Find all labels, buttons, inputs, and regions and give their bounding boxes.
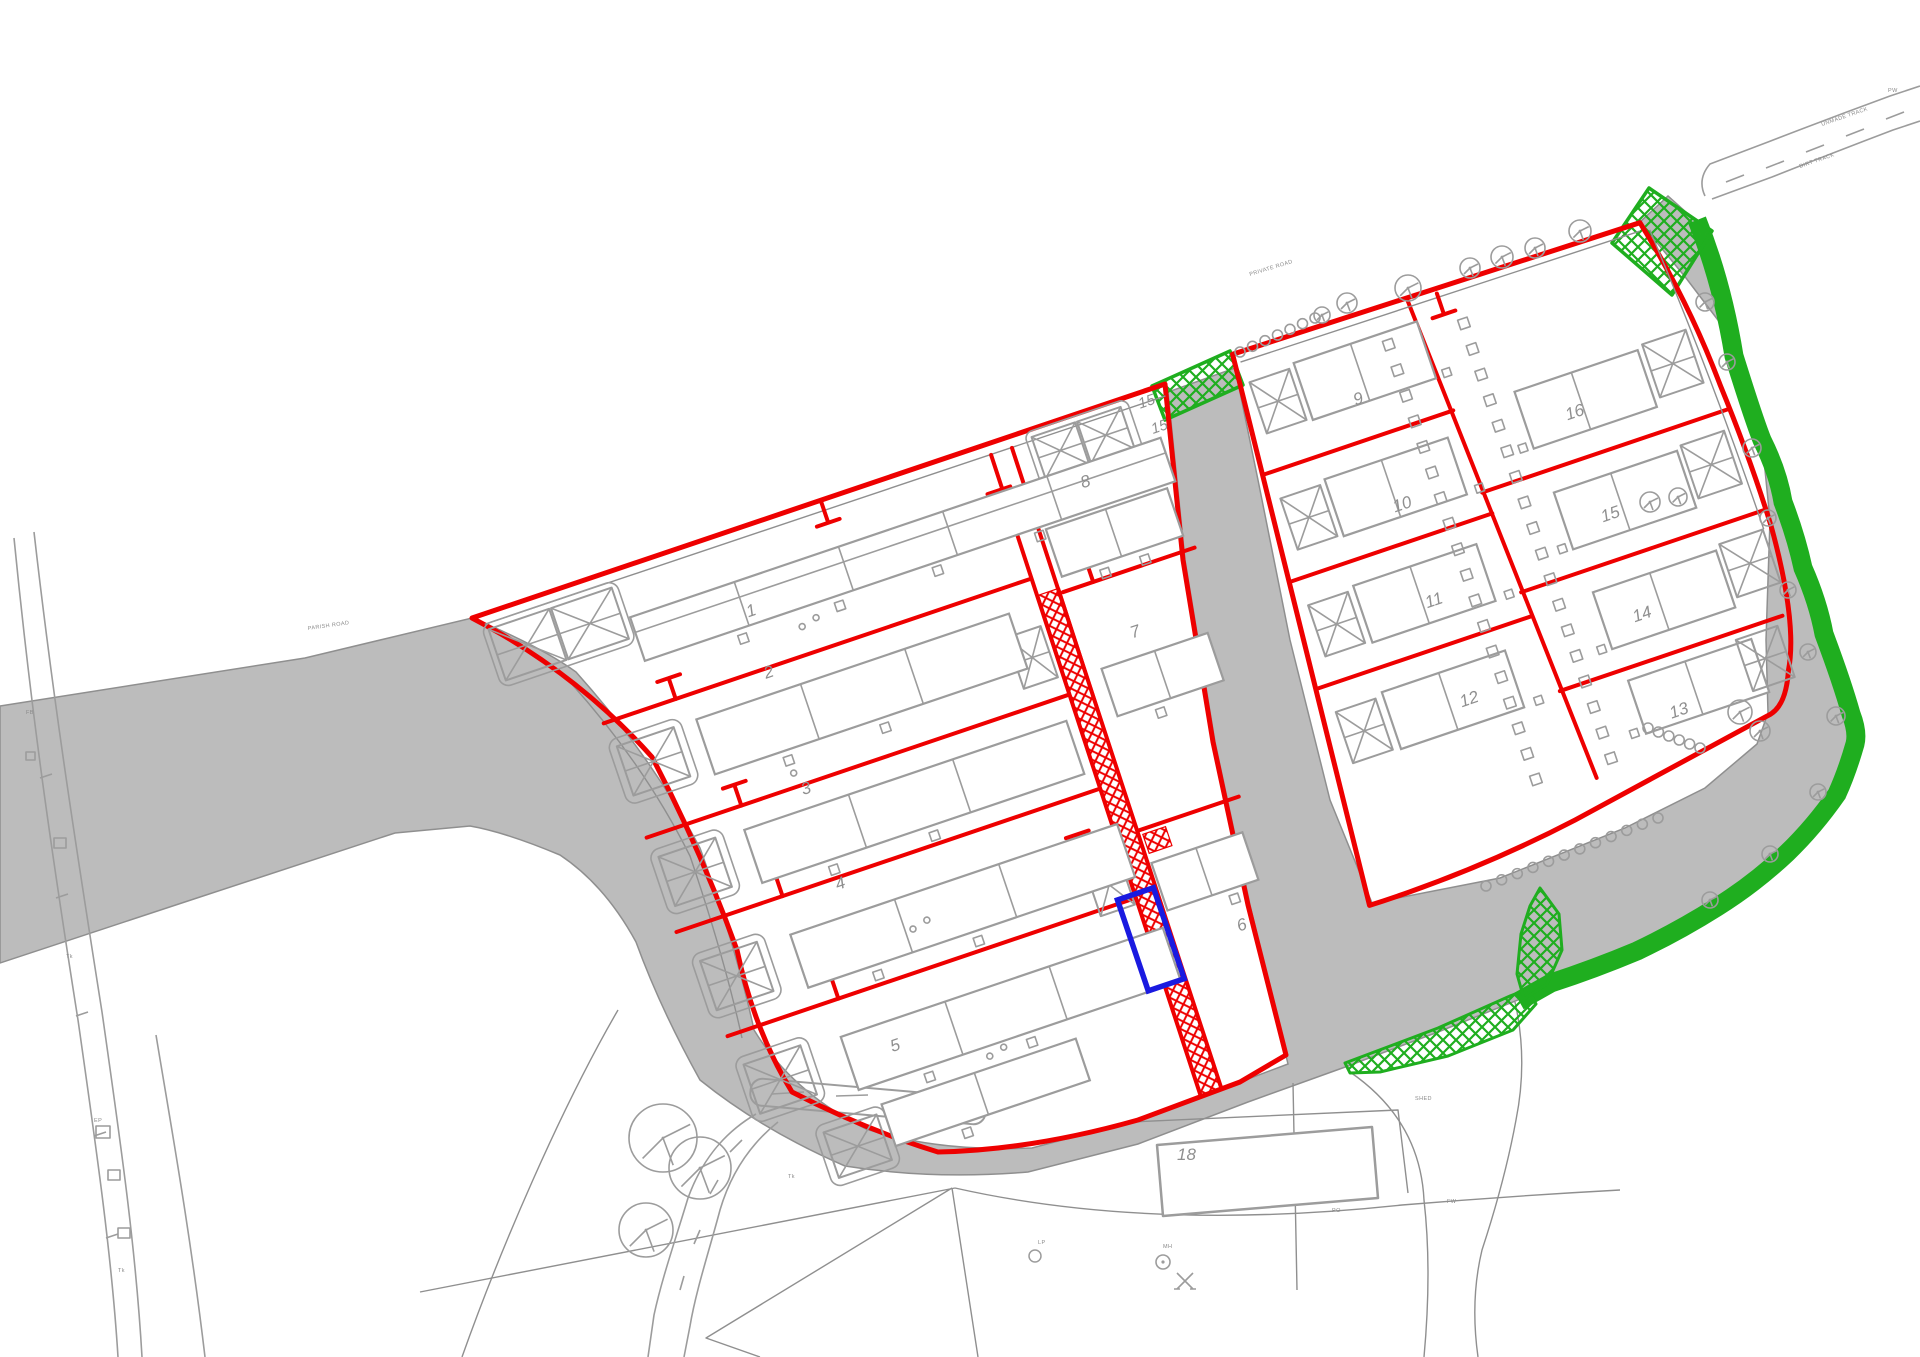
boundary-t-mark <box>1426 290 1456 319</box>
svg-text:18: 18 <box>1177 1145 1196 1164</box>
svg-text:Tk: Tk <box>788 1174 795 1180</box>
svg-text:Tk: Tk <box>118 1268 125 1274</box>
tree <box>1337 293 1357 313</box>
micro-annotation-label: MH <box>1163 1244 1172 1250</box>
field-fence-line <box>156 1035 205 1357</box>
plot-number-label: 7 <box>1128 621 1144 642</box>
svg-text:PARISH ROAD: PARISH ROAD <box>307 620 349 632</box>
micro-annotation-label: FB <box>26 710 34 716</box>
svg-text:6: 6 <box>1234 914 1250 935</box>
svg-text:PO: PO <box>1332 1208 1341 1214</box>
svg-text:UNMADE TRACK: UNMADE TRACK <box>1821 106 1869 128</box>
drawing-layers: 12345678910111213141516151518PARISH ROAD… <box>0 86 1920 1357</box>
lamp-circle <box>1029 1250 1041 1262</box>
micro-annotation-label: DIRT TRACK <box>1799 152 1836 170</box>
manhole <box>1156 1255 1170 1269</box>
tree <box>629 1104 697 1172</box>
carport-bay <box>1336 699 1393 764</box>
micro-annotation-label: SHED <box>1415 1096 1432 1102</box>
bush-row <box>1643 723 1705 753</box>
micro-annotation-label: PO <box>1332 1208 1341 1214</box>
svg-text:Tk: Tk <box>66 954 73 960</box>
micro-annotation-label: PARISH ROAD <box>307 620 349 632</box>
footpath-branch-hatch <box>1143 827 1172 854</box>
micro-annotation-label: EP <box>94 1118 102 1124</box>
tree <box>619 1203 673 1257</box>
micro-annotation-label: PRIVATE ROAD <box>1249 259 1294 278</box>
micro-annotation-label: Tk <box>788 1174 795 1180</box>
svg-text:DIRT TRACK: DIRT TRACK <box>1799 152 1836 170</box>
micro-annotation-label: FW <box>1447 1199 1457 1205</box>
micro-annotation-label: LP <box>1038 1240 1046 1246</box>
svg-text:SHED: SHED <box>1415 1096 1432 1102</box>
plot-number-label: 6 <box>1234 914 1250 935</box>
site-plan-page: 12345678910111213141516151518PARISH ROAD… <box>0 0 1920 1357</box>
site-plan-drawing: 12345678910111213141516151518PARISH ROAD… <box>0 0 1920 1357</box>
field-boundary-sw <box>462 1010 618 1357</box>
micro-annotation-label: Tk <box>118 1268 125 1274</box>
svg-text:FW: FW <box>1447 1199 1457 1205</box>
svg-text:EP: EP <box>94 1118 102 1124</box>
svg-text:PRIVATE ROAD: PRIVATE ROAD <box>1249 259 1294 278</box>
svg-text:PW: PW <box>1888 88 1898 94</box>
house-building <box>1593 551 1735 650</box>
field-boundary-radials <box>420 1188 978 1357</box>
tree <box>1569 220 1591 242</box>
carport-bay <box>1308 592 1365 657</box>
building-18-outline <box>1157 1127 1378 1216</box>
house-building <box>1628 639 1769 734</box>
svg-text:FB: FB <box>26 710 34 716</box>
house-building <box>1325 438 1467 537</box>
micro-annotation-label: PW <box>1888 88 1898 94</box>
house-building <box>1515 350 1657 449</box>
svg-text:LP: LP <box>1038 1240 1046 1246</box>
tree <box>1314 307 1330 323</box>
micro-annotation-label: UNMADE TRACK <box>1821 106 1869 128</box>
svg-text:MH: MH <box>1163 1244 1172 1250</box>
plot-number-label: 18 <box>1177 1145 1196 1164</box>
micro-annotation-label: Tk <box>66 954 73 960</box>
bench-marker <box>1174 1273 1196 1289</box>
unmade-track-edges <box>1702 86 1920 199</box>
tree <box>1728 700 1752 724</box>
svg-text:7: 7 <box>1128 621 1144 642</box>
